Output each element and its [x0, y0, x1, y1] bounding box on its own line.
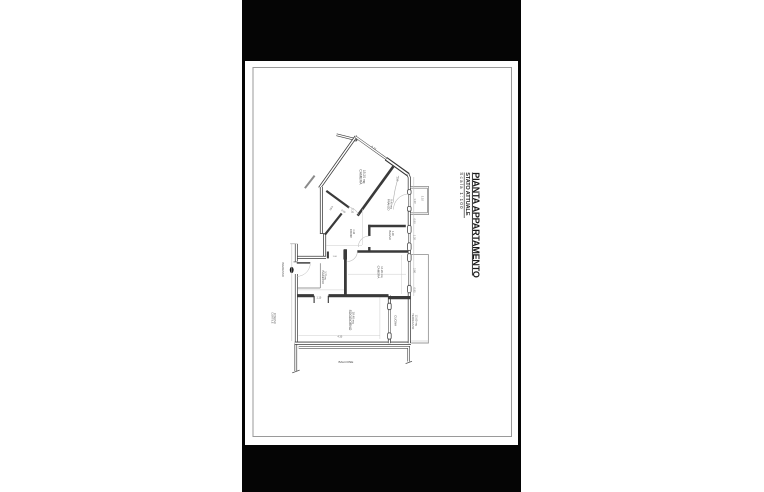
svg-text:STATO ATTUALE: STATO ATTUALE: [464, 172, 470, 216]
svg-text:1.20: 1.20: [413, 235, 417, 241]
svg-text:3.70 mq: 3.70 mq: [324, 271, 327, 280]
svg-text:CAMERA: CAMERA: [358, 169, 362, 185]
svg-text:18.40 mq: 18.40 mq: [352, 312, 356, 324]
svg-text:2.80: 2.80: [413, 268, 417, 274]
svg-text:12.60 mq: 12.60 mq: [414, 315, 418, 327]
svg-text:BALCONE: BALCONE: [339, 360, 354, 364]
svg-text:9.40 mq: 9.40 mq: [390, 199, 394, 209]
svg-text:4.90: 4.90: [391, 231, 394, 236]
svg-text:INGRESSO: INGRESSO: [281, 262, 285, 278]
svg-text:CUCINA: CUCINA: [394, 315, 398, 326]
svg-text:SOGGIORNO: SOGGIORNO: [348, 310, 352, 331]
svg-text:4.10: 4.10: [352, 229, 355, 234]
svg-text:15.20 mq: 15.20 mq: [362, 170, 366, 184]
svg-text:4.30: 4.30: [338, 335, 343, 338]
svg-text:INTERNO: INTERNO: [273, 313, 276, 324]
svg-text:0.95: 0.95: [413, 288, 417, 294]
svg-text:1.10: 1.10: [317, 297, 322, 300]
svg-text:Scala 1:100: Scala 1:100: [459, 172, 464, 209]
svg-text:0.90: 0.90: [413, 219, 417, 225]
svg-text:2.10: 2.10: [350, 208, 353, 213]
svg-text:1.50: 1.50: [396, 177, 399, 182]
svg-text:14.20 mq: 14.20 mq: [380, 266, 384, 278]
svg-text:3.10: 3.10: [421, 196, 425, 202]
